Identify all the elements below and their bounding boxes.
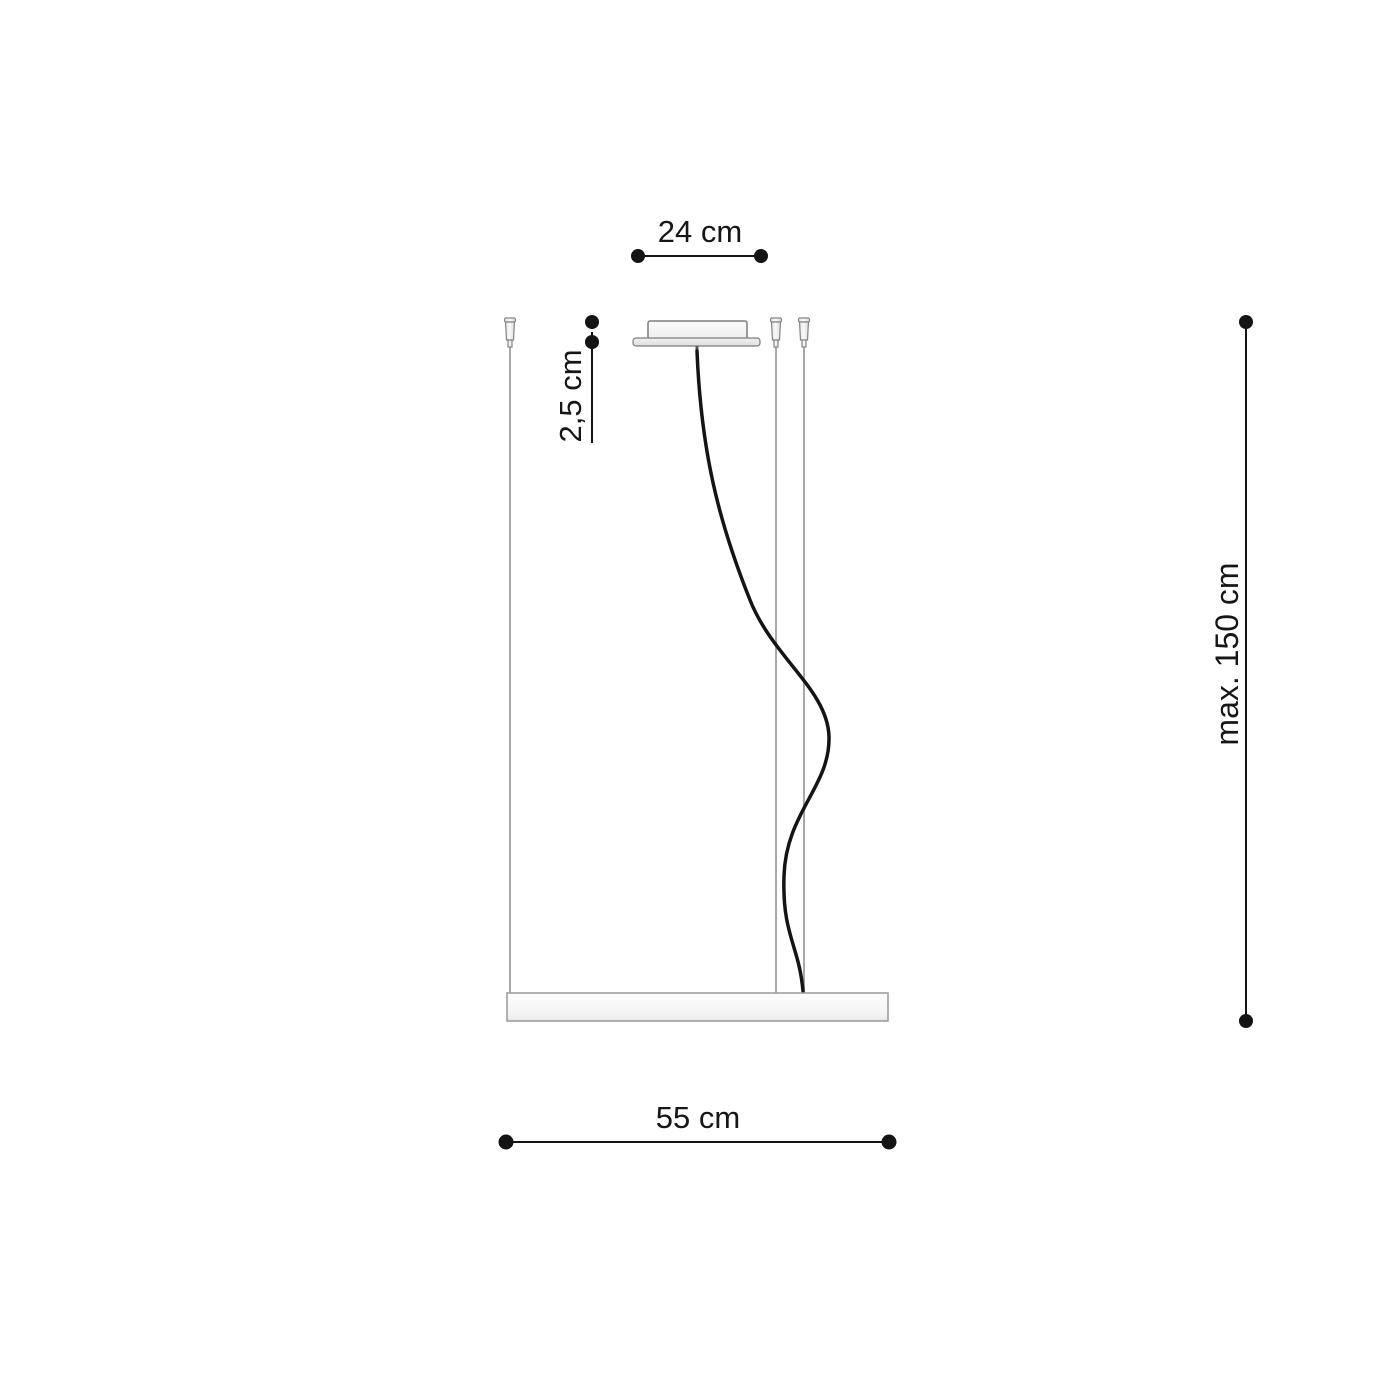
dimension-endpoint-dot xyxy=(585,335,599,349)
max-drop-label: max. 150 cm xyxy=(1209,562,1245,745)
canopy-flange xyxy=(633,338,760,346)
dimension-canopy-width xyxy=(631,249,768,263)
lamp-line-art xyxy=(0,0,1400,1400)
lamp-bar-fixture xyxy=(507,993,888,1021)
wire-grip-connector-right xyxy=(799,318,810,347)
ceiling-canopy xyxy=(633,321,760,354)
wire-grip-connector-left xyxy=(505,318,516,347)
dimension-fixture-length xyxy=(499,1135,897,1150)
dimension-endpoint-dot xyxy=(754,249,768,263)
power-cable xyxy=(697,351,829,991)
dimension-endpoint-dot xyxy=(631,249,645,263)
wire-grip-connector-middle xyxy=(771,318,782,347)
dimension-endpoint-dot xyxy=(1239,1014,1253,1028)
diagram-canvas: 24 cm 2,5 cm max. 150 cm 55 cm xyxy=(0,0,1400,1400)
canopy-width-label: 24 cm xyxy=(658,214,742,250)
dimension-endpoint-dot xyxy=(585,315,599,329)
dimension-endpoint-dot xyxy=(1239,315,1253,329)
dimension-endpoint-dot xyxy=(882,1135,897,1150)
canopy-height-label: 2,5 cm xyxy=(553,349,589,442)
fixture-length-label: 55 cm xyxy=(656,1100,740,1136)
canopy-body xyxy=(648,321,747,339)
dimension-endpoint-dot xyxy=(499,1135,514,1150)
